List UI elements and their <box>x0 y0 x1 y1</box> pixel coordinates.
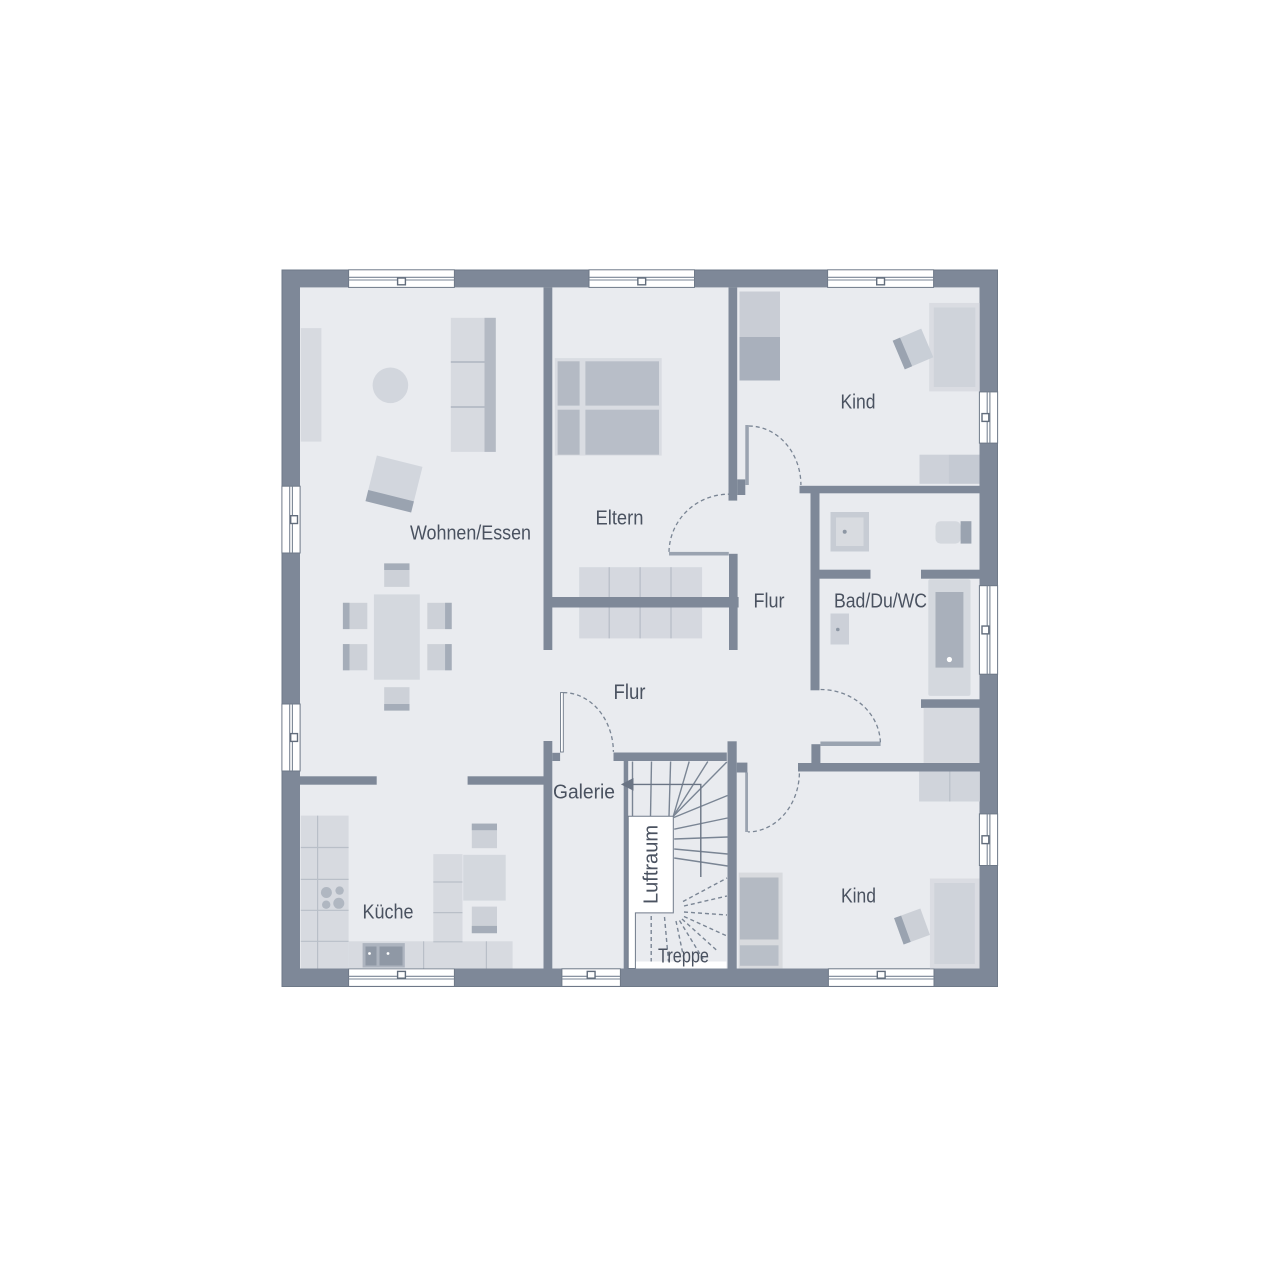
svg-text:Eltern: Eltern <box>596 508 644 530</box>
svg-text:Flur: Flur <box>754 591 785 613</box>
svg-text:Kind: Kind <box>841 886 876 908</box>
svg-text:Flur: Flur <box>614 681 646 704</box>
svg-text:Wohnen/Essen: Wohnen/Essen <box>410 523 531 545</box>
svg-text:Treppe: Treppe <box>658 946 709 968</box>
svg-text:Kind: Kind <box>841 392 876 414</box>
svg-text:Bad/Du/WC: Bad/Du/WC <box>834 591 927 613</box>
svg-text:Küche: Küche <box>363 902 414 924</box>
svg-text:Luftraum: Luftraum <box>641 825 663 904</box>
svg-text:Galerie: Galerie <box>553 782 615 804</box>
